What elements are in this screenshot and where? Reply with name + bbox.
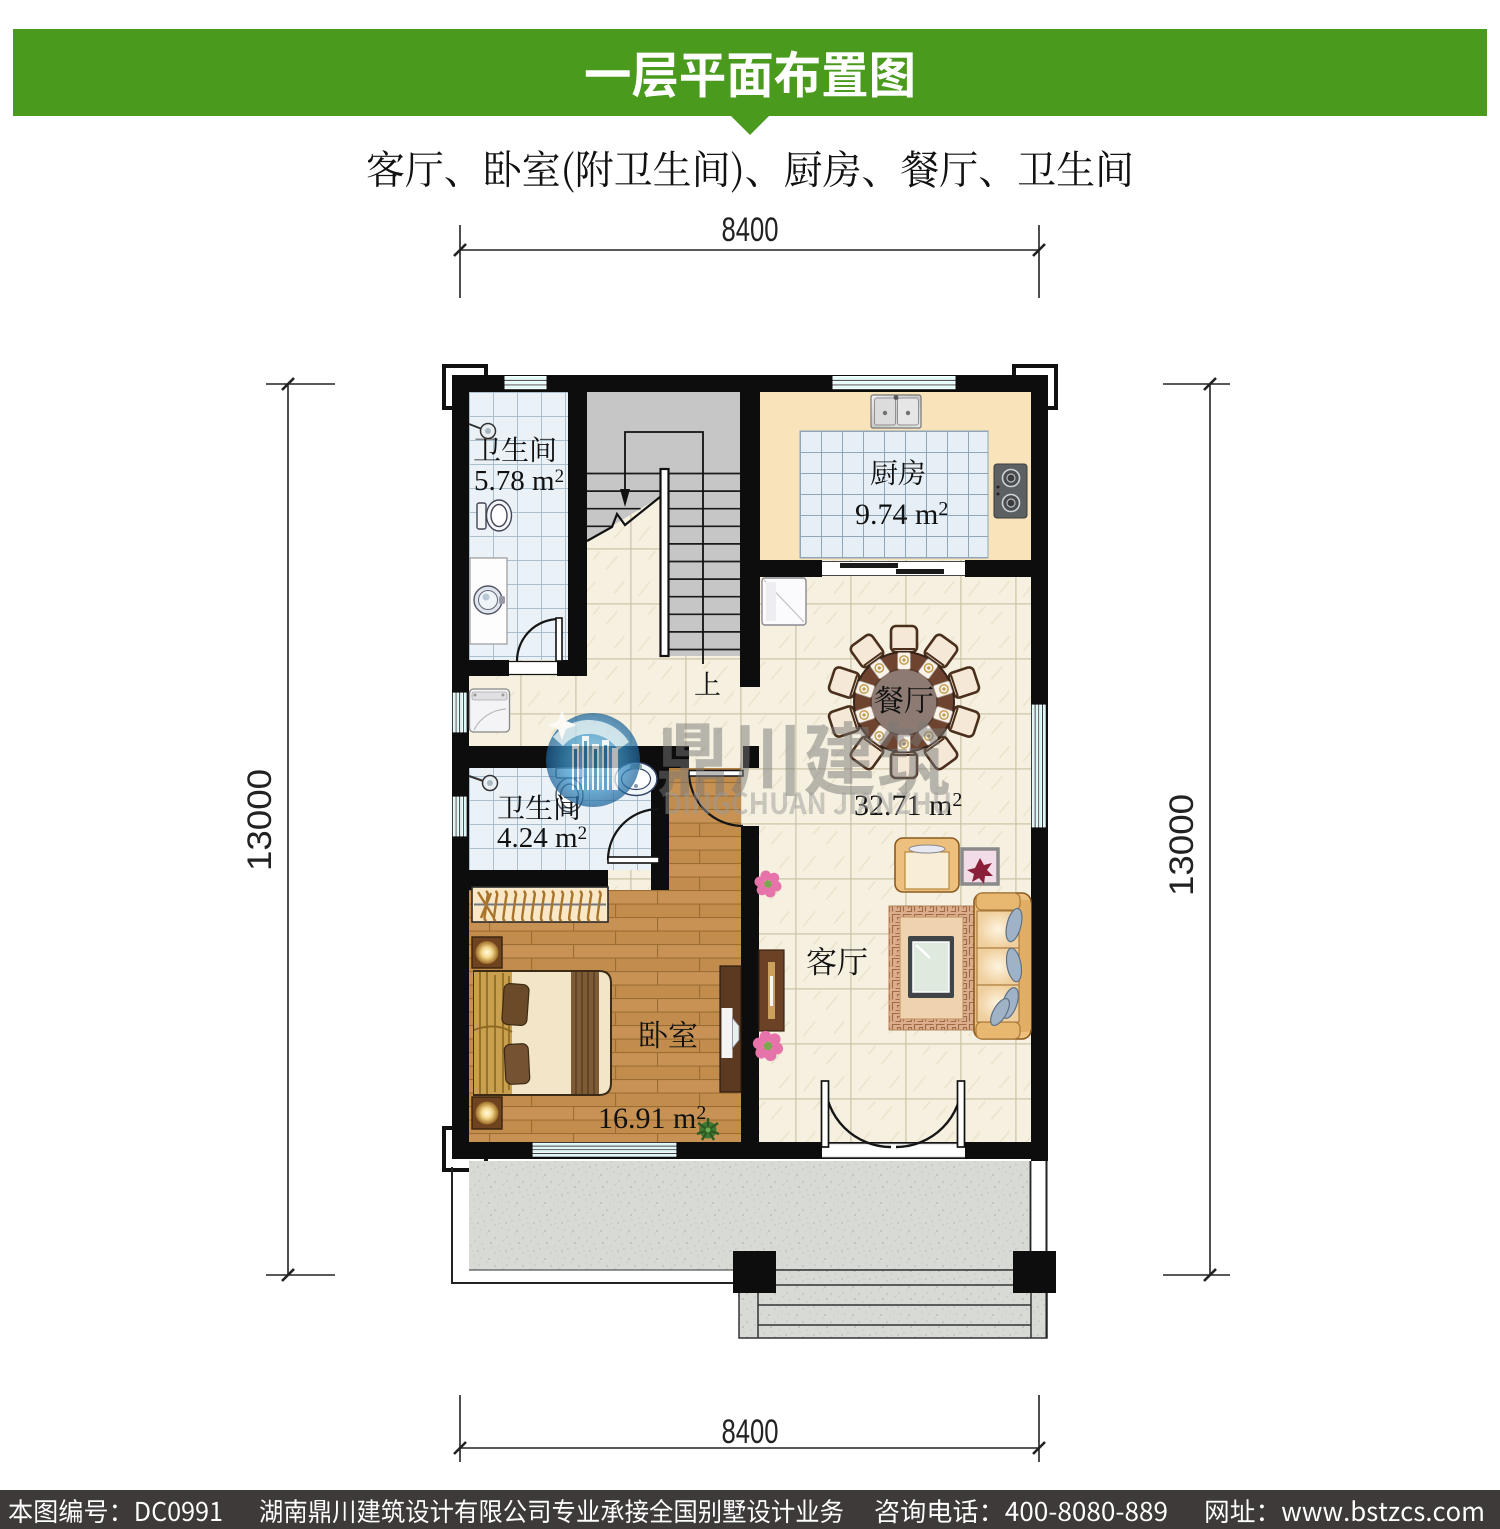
svg-text:8400: 8400: [722, 1413, 779, 1451]
svg-text:9.74 m2: 9.74 m2: [855, 498, 948, 531]
svg-text:5.78 m2: 5.78 m2: [474, 465, 564, 497]
svg-text:13000: 13000: [1163, 794, 1201, 896]
svg-text:8400: 8400: [722, 211, 779, 249]
svg-text:16.91 m2: 16.91 m2: [598, 1102, 706, 1135]
svg-text:13000: 13000: [241, 769, 279, 871]
svg-text:4.24 m2: 4.24 m2: [497, 822, 587, 854]
